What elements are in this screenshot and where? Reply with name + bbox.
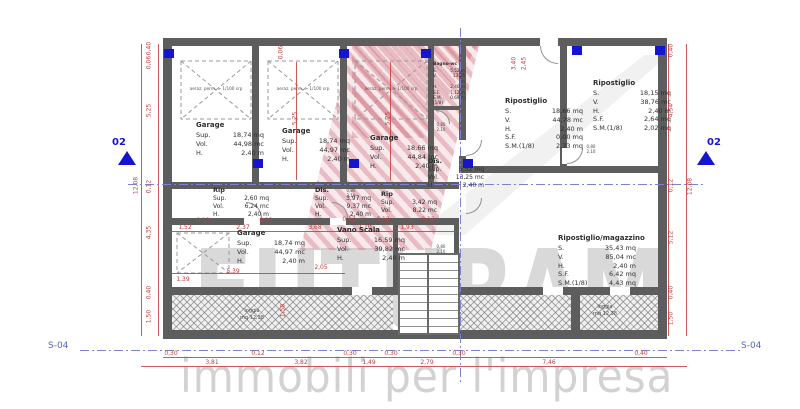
wall-mid-right: [459, 166, 665, 173]
section-triangle-right: [697, 151, 715, 165]
dimension-label: 0,30: [447, 350, 471, 357]
door-size-label: 0,802,10: [434, 245, 448, 254]
dimension-label: 3,68: [303, 224, 327, 231]
wall-parapet-left: [163, 330, 571, 339]
dimension-label: 0,12: [246, 350, 270, 357]
dimension-label: 2,79: [415, 359, 439, 366]
room-ripostiglio-a: Ripostiglio S.18,66 mq V.44,78 mc H.2,40…: [505, 97, 583, 151]
door-arc: [466, 140, 482, 156]
dimension-label: 2,45: [521, 52, 528, 76]
room-garage2: Garage Sup.18,74 mq Vol.44,97 mc H.2,40 …: [282, 127, 350, 163]
loggia-right-label: loggia mq 12,38: [585, 304, 625, 317]
room-title: Garage: [237, 229, 305, 237]
room-bagno-wc: Bagno-wc S.5,52 m V.13,25 m H.2,40 m S.F…: [433, 62, 465, 106]
aeration-label: aeraz. perm. > 1/100 srp: [181, 86, 251, 91]
dimension-label: 0,12: [146, 175, 153, 199]
dimension-label: 4,35: [146, 221, 153, 245]
sheet-label-left: S-04: [48, 341, 68, 351]
room-title: Garage: [370, 134, 438, 142]
door-gap-loggia-right: [610, 287, 630, 295]
room-title: Ripostiglio: [593, 79, 671, 87]
room-title: Dis.: [315, 186, 371, 194]
door-size-label: 0,802,10: [584, 145, 598, 154]
dimension-label: 1,50: [146, 305, 153, 329]
dimension-label: 5,25: [385, 107, 392, 131]
dimension-label: 0,40: [629, 350, 653, 357]
room-dis-small: Dis. Sup.3,97 mq Vol.9,37 mc H.2,40 m: [315, 186, 371, 219]
dimension-label: 5,12: [668, 226, 675, 250]
floor-plan-canvas: FUTURAM immobili per l'impresa: [0, 0, 800, 409]
section-triangle-left: [118, 151, 136, 165]
room-ripostiglio-b: Ripostiglio S.18,15 mq V.38,76 mc H.2,40…: [593, 79, 671, 133]
dimension-label: 2,05: [309, 264, 333, 271]
dimension-label: 1,50: [280, 299, 287, 323]
dimension-label: 3,81: [200, 359, 224, 366]
room-title: Rip: [213, 186, 269, 194]
dimension-label: 12,08: [687, 175, 694, 199]
staircase: [398, 253, 460, 335]
room-dis-center: Dis. Sup.5,52 mq Vol.13,25 mc H.2,40 m: [428, 157, 484, 190]
dim-line: [158, 44, 159, 336]
room-title: Ripostiglio/magazzino: [558, 234, 645, 242]
dimension-label: 5,39: [221, 268, 245, 275]
loggia-name: loggia: [244, 308, 259, 314]
dimension-label: 1,39: [171, 276, 195, 283]
wall-top: [163, 38, 667, 46]
dimension-label: 0,30: [159, 350, 183, 357]
loggia-left-label: loggia mq 12,38: [232, 308, 272, 321]
dimension-label: 0,40: [146, 281, 153, 305]
door-gap-ripostiglio-a: [540, 38, 558, 46]
blue-marker: [421, 49, 431, 58]
blue-marker: [655, 46, 665, 55]
dimension-label: 7,46: [537, 359, 561, 366]
door-size-label: 0,802,10: [434, 123, 448, 132]
door-height: 2,10: [584, 150, 598, 155]
blue-marker: [164, 49, 174, 58]
door-height: 2,10: [434, 128, 448, 133]
dim-line: [141, 44, 142, 336]
room-rip-center: Rip Sup.3,42 mq Vol.8,22 mc: [381, 190, 437, 215]
room-ripostiglio-magazzino: Ripostiglio/magazzino S.35,43 mq V.85,04…: [558, 234, 645, 288]
loggia-area: mq 12,38: [240, 315, 264, 321]
room-title: Dis.: [428, 157, 484, 165]
section-marker-right: 02: [707, 137, 721, 148]
dimension-label: 12,08: [133, 174, 140, 198]
dimension-label: 0,40: [668, 281, 675, 305]
dimension-label: 1,50: [668, 307, 675, 331]
dimension-label: 5,25: [146, 99, 153, 123]
room-garage1: Garage Sup.18,74 mq Vol.44,98 mc H.2,40 …: [196, 121, 264, 157]
blue-marker: [339, 49, 349, 58]
loggia-left-hatch-2: [459, 295, 571, 330]
wall-loggia-divider: [571, 287, 580, 339]
door-gap-loggia-left: [352, 287, 372, 295]
door-height: 2,10: [434, 250, 448, 255]
blue-marker: [253, 159, 263, 168]
dimension-label: 0,30: [338, 350, 362, 357]
dimension-label: 0,30: [379, 350, 403, 357]
aeration-label: aeraz. perm. > 1/100 srp: [355, 86, 427, 91]
door-gap-loggia-mid: [543, 287, 563, 295]
room-title: Bagno-wc: [433, 62, 465, 67]
room-vano-scala: Vano Scala Sup.16,59 mq Vol.39,82 mc H.2…: [337, 226, 405, 262]
dimension-label: 0,06: [278, 41, 285, 65]
dim-line: [167, 231, 459, 232]
dimension-label: 3,40: [511, 52, 518, 76]
dimension-label: 0,12: [668, 174, 675, 198]
staircase-divider: [427, 255, 429, 333]
room-title: Vano Scala: [337, 226, 405, 234]
room-garage4: Garage Sup.18,74 mq Vol.44,97 mc H.2,40 …: [237, 229, 305, 265]
room-title: Garage: [196, 121, 264, 129]
room-title: Garage: [282, 127, 350, 135]
dimension-label: 0,12: [416, 216, 440, 223]
aeration-label: aeraz. perm. > 1/100 srp: [268, 86, 338, 91]
door-arc: [540, 46, 558, 64]
room-rip-small: Rip Sup.2,60 mq Vol.6,24 mc H.2,40 m: [213, 186, 269, 219]
dim-line: [163, 357, 667, 358]
room-title: Rip: [381, 190, 437, 198]
dim-line: [167, 273, 345, 274]
dimension-label: 1,52: [173, 224, 197, 231]
blue-marker: [572, 46, 582, 55]
dimension-label: 1,49: [357, 359, 381, 366]
dimension-label: 0,12: [371, 216, 395, 223]
wall-parapet-right: [580, 330, 667, 339]
blue-marker: [349, 159, 359, 168]
loggia-name: loggia: [597, 304, 612, 310]
loggia-area: mq 12,38: [593, 311, 617, 317]
dimension-label: 0,40: [668, 39, 675, 63]
sheet-label-right: S-04: [741, 341, 761, 351]
dim-line: [141, 366, 687, 367]
section-marker-left: 02: [112, 137, 126, 148]
section-line-horizontal: [128, 184, 704, 185]
room-title: Ripostiglio: [505, 97, 583, 105]
dimension-label: 3,82: [289, 359, 313, 366]
dimension-label: 0,12: [191, 217, 215, 224]
dimension-label: 0,06: [146, 51, 153, 75]
